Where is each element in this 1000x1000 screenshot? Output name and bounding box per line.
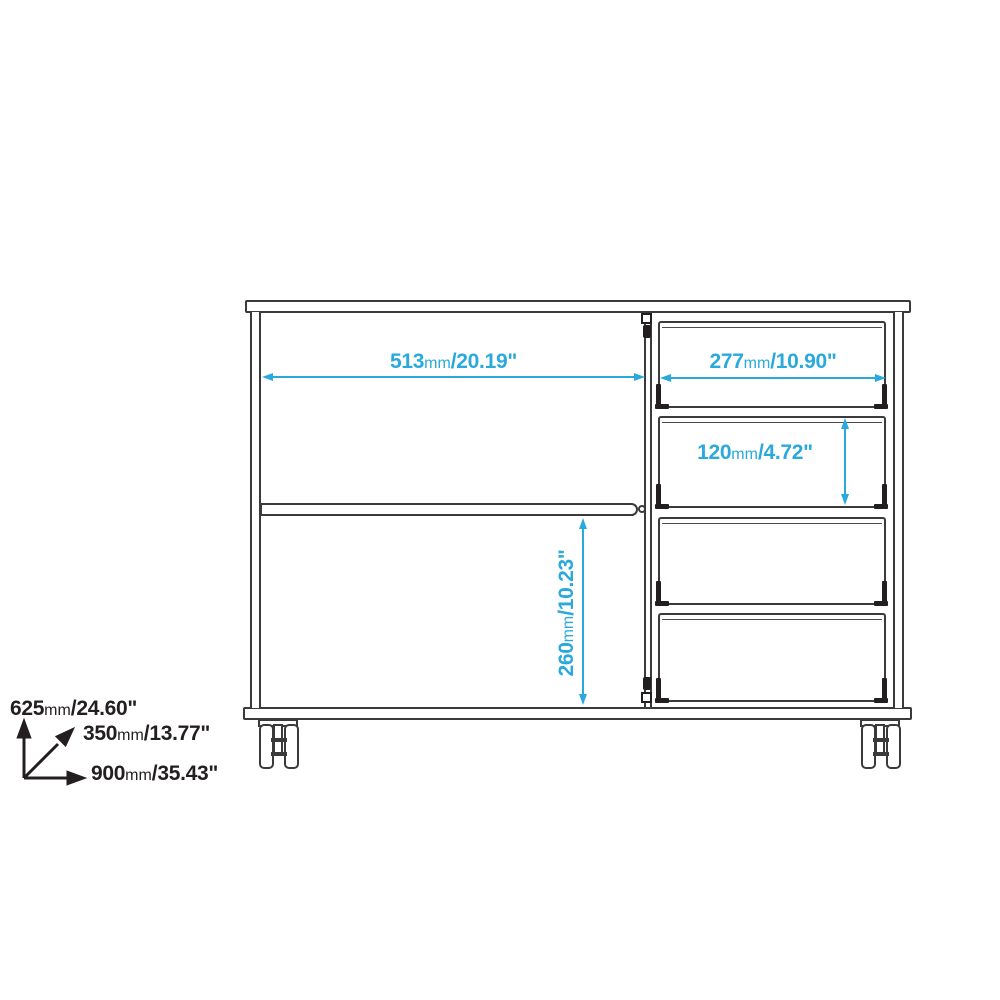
left-caster-axle-top xyxy=(271,738,287,742)
overall-height-label: 625mm/24.60" xyxy=(10,697,137,723)
dim-drawer-height-unit: mm xyxy=(731,446,758,463)
dim-drawer-height-arrow-down xyxy=(841,494,849,505)
cabinet-right-wall xyxy=(893,312,904,708)
dim-drawer-width-unit: mm xyxy=(744,355,771,372)
dim-left-width-unit: mm xyxy=(424,355,451,372)
divider-bottom-hinge xyxy=(643,677,651,690)
drawer-4-right-slide-foot xyxy=(874,698,888,703)
drawer-3-right-slide xyxy=(882,581,887,603)
divider-top-hinge xyxy=(643,325,651,338)
dim-left-width-label: 513mm/20.19" xyxy=(262,350,645,376)
drawer-1-right-slide xyxy=(882,384,887,406)
drawer-3 xyxy=(658,517,886,605)
dim-lower-height-arrow-down xyxy=(579,694,587,705)
drawer-2-left-slide-foot xyxy=(655,504,669,509)
right-caster-wheel-outer xyxy=(861,724,876,769)
overall-height-mm: 625 xyxy=(10,697,44,720)
dim-drawer-height-line xyxy=(844,423,846,501)
overall-width-in: /35.43" xyxy=(152,762,218,785)
drawer-2-left-slide xyxy=(656,484,661,506)
dim-lower-height-line xyxy=(582,523,584,700)
dim-lower-height-in: /10.23" xyxy=(555,549,578,615)
dim-drawer-height-mm: 120 xyxy=(697,441,731,464)
dim-lower-height-arrow-up xyxy=(579,518,587,529)
overall-height-unit: mm xyxy=(44,702,71,719)
dim-lower-height-unit: mm xyxy=(560,616,577,643)
drawer-1-left-slide xyxy=(656,384,661,406)
dim-drawer-width-line xyxy=(666,377,881,379)
drawer-4 xyxy=(658,613,886,702)
overall-depth-mm: 350 xyxy=(83,722,117,745)
overall-height-in: /24.60" xyxy=(71,697,137,720)
drawer-1-left-slide-foot xyxy=(655,404,669,409)
overall-width-unit: mm xyxy=(125,767,152,784)
left-caster-axle-bottom xyxy=(271,752,287,756)
left-shelf xyxy=(260,503,638,516)
cabinet-bottom-panel xyxy=(243,707,912,720)
drawer-3-right-slide-foot xyxy=(874,601,888,606)
overall-depth-label: 350mm/13.77" xyxy=(83,722,210,748)
dim-left-width-mm: 513 xyxy=(390,350,424,373)
drawer-4-left-slide xyxy=(656,678,661,700)
dim-drawer-width-arrow-right xyxy=(875,374,886,382)
right-caster-axle-bottom xyxy=(873,752,889,756)
dim-left-width-line xyxy=(268,376,640,378)
left-caster-wheel-inner xyxy=(284,724,299,769)
dim-left-width-in: /20.19" xyxy=(451,350,517,373)
drawer-4-right-slide xyxy=(882,678,887,700)
dim-drawer-width-label: 277mm/10.90" xyxy=(660,350,886,376)
dim-lower-height-label: 260mm/10.23" xyxy=(555,533,581,693)
drawer-4-left-slide-foot xyxy=(655,698,669,703)
left-caster-wheel-outer xyxy=(259,724,274,769)
drawer-2-right-slide-foot xyxy=(874,504,888,509)
technical-drawing-canvas: 513mm/20.19" 277mm/10.90" 120mm/4.72" 26… xyxy=(0,0,1000,1000)
dim-drawer-width-in: /10.90" xyxy=(770,350,836,373)
divider-top-hinge-plate xyxy=(641,313,652,324)
depth-axis-arrow xyxy=(24,744,58,778)
drawer-2-right-slide xyxy=(882,484,887,506)
dim-drawer-height-arrow-up xyxy=(841,418,849,429)
drawer-3-left-slide-foot xyxy=(655,601,669,606)
drawer-3-left-slide xyxy=(656,581,661,603)
drawer-1-right-slide-foot xyxy=(874,404,888,409)
overall-depth-in: /13.77" xyxy=(144,722,210,745)
overall-width-label: 900mm/35.43" xyxy=(91,762,218,788)
dim-drawer-height-label: 120mm/4.72" xyxy=(680,441,830,467)
shelf-pin xyxy=(638,505,646,513)
dim-left-width-arrow-right xyxy=(634,373,645,381)
right-caster-axle-top xyxy=(873,738,889,742)
dim-left-width-arrow-left xyxy=(262,373,273,381)
dim-drawer-height-in: /4.72" xyxy=(758,441,813,464)
dim-drawer-width-mm: 277 xyxy=(709,350,743,373)
overall-width-mm: 900 xyxy=(91,762,125,785)
overall-depth-unit: mm xyxy=(117,727,144,744)
dim-drawer-width-arrow-left xyxy=(660,374,671,382)
right-caster-wheel-inner xyxy=(886,724,901,769)
divider-bottom-hinge-plate xyxy=(641,692,652,703)
cabinet-top-panel xyxy=(245,300,911,313)
dim-lower-height-mm: 260 xyxy=(555,642,578,676)
